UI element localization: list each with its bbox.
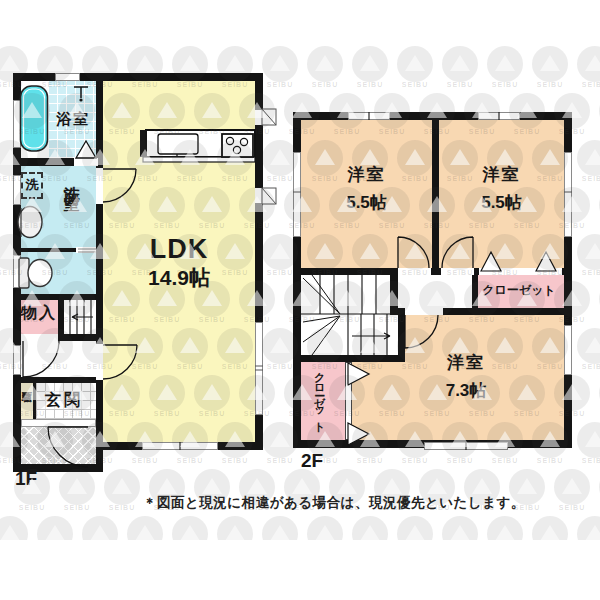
watermark-text: SEIBU bbox=[168, 457, 212, 464]
window bbox=[255, 322, 263, 415]
watermark-logo-icon bbox=[352, 516, 388, 540]
window bbox=[478, 112, 520, 120]
door-opening bbox=[96, 168, 103, 204]
watermark-logo-icon bbox=[532, 46, 568, 82]
wall bbox=[58, 300, 64, 334]
castle-icon bbox=[540, 525, 560, 540]
door-opening bbox=[96, 344, 103, 380]
watermark-text: SEIBU bbox=[573, 175, 600, 182]
entrance-porch bbox=[21, 427, 96, 464]
window bbox=[564, 325, 572, 375]
wall bbox=[293, 112, 572, 120]
wall bbox=[96, 81, 103, 472]
watermark-logo-icon bbox=[442, 46, 478, 82]
castle-icon bbox=[270, 55, 290, 71]
window bbox=[55, 73, 80, 81]
castle-icon bbox=[270, 149, 290, 165]
door-opening bbox=[76, 247, 96, 253]
window bbox=[13, 175, 21, 205]
watermark-text: SEIBU bbox=[258, 457, 302, 464]
storage-label: 物入 bbox=[21, 304, 57, 322]
watermark-badge: SEIBU bbox=[528, 516, 572, 540]
watermark-text: SEIBU bbox=[10, 504, 54, 511]
watermark-text: SEIBU bbox=[393, 81, 437, 88]
watermark-text: SEIBU bbox=[303, 81, 347, 88]
watermark-text: SEIBU bbox=[55, 504, 99, 511]
watermark-logo-icon bbox=[577, 46, 600, 82]
watermark-text: SEIBU bbox=[483, 457, 527, 464]
watermark-badge: SEIBU bbox=[213, 516, 257, 540]
castle-icon bbox=[585, 431, 600, 447]
watermark-badge: SEIBU bbox=[78, 516, 122, 540]
watermark-text: SEIBU bbox=[393, 457, 437, 464]
watermark-text: SEIBU bbox=[348, 81, 392, 88]
stairs-1f bbox=[64, 300, 96, 334]
castle-icon bbox=[315, 55, 335, 71]
castle-icon bbox=[585, 55, 600, 71]
watermark-logo-icon bbox=[577, 140, 600, 176]
castle-icon bbox=[450, 55, 470, 71]
watermark-badge: SEIBU bbox=[483, 46, 527, 88]
casement-window bbox=[262, 109, 276, 125]
watermark-text: SEIBU bbox=[438, 81, 482, 88]
watermark-logo-icon bbox=[352, 46, 388, 82]
watermark-badge: SEIBU bbox=[100, 469, 144, 511]
watermark-badge: SEIBU bbox=[168, 516, 212, 540]
wall bbox=[33, 383, 36, 419]
window bbox=[255, 110, 263, 125]
watermark-logo-icon bbox=[37, 516, 73, 540]
floor-plan: 洗 bbox=[0, 0, 600, 600]
shoe-cabinet bbox=[21, 383, 33, 419]
floor2-label: 2F bbox=[301, 450, 323, 472]
door-opening bbox=[405, 308, 441, 315]
watermark-text: SEIBU bbox=[438, 457, 482, 464]
watermark-badge: SEIBU bbox=[528, 46, 572, 88]
door-opening bbox=[398, 268, 431, 275]
castle-icon bbox=[0, 55, 20, 71]
watermark-text: SEIBU bbox=[528, 81, 572, 88]
watermark-text: SEIBU bbox=[550, 504, 594, 511]
watermark-logo-icon bbox=[59, 469, 95, 505]
bedroom-c-size-label: 7.3帖 bbox=[386, 381, 546, 401]
castle-icon bbox=[270, 243, 290, 259]
castle-icon bbox=[585, 337, 600, 353]
bedroom-b-size-label: 5.5帖 bbox=[439, 193, 564, 213]
watermark-badge: SEIBU bbox=[595, 375, 600, 417]
watermark-text: SEIBU bbox=[573, 269, 600, 276]
window bbox=[13, 345, 21, 375]
watermark-badge: SEIBU bbox=[438, 516, 482, 540]
casement-window bbox=[262, 188, 276, 204]
wall bbox=[58, 334, 103, 341]
wall bbox=[432, 120, 439, 268]
castle-icon bbox=[337, 478, 357, 494]
watermark-text: SEIBU bbox=[595, 316, 600, 323]
watermark-badge: SEIBU bbox=[595, 93, 600, 135]
wall bbox=[443, 308, 564, 315]
washing-machine-space: 洗 bbox=[21, 172, 43, 199]
castle-icon bbox=[135, 525, 155, 540]
watermark-logo-icon bbox=[577, 516, 600, 540]
watermark-badge: SEIBU bbox=[573, 516, 600, 540]
castle-icon bbox=[450, 525, 470, 540]
castle-icon bbox=[405, 525, 425, 540]
room-bedroom-c bbox=[351, 362, 564, 440]
watermark-text: SEIBU bbox=[348, 457, 392, 464]
hall-1f bbox=[21, 341, 96, 377]
castle-icon bbox=[585, 243, 600, 259]
watermark-logo-icon bbox=[577, 422, 600, 458]
watermark-badge: SEIBU bbox=[55, 469, 99, 511]
watermark-badge: SEIBU bbox=[595, 187, 600, 229]
room-toilet bbox=[21, 248, 96, 294]
window bbox=[13, 100, 21, 148]
ldk-size-label: 14.9帖 bbox=[103, 266, 255, 290]
watermark-badge: SEIBU bbox=[595, 469, 600, 511]
watermark-text: SEIBU bbox=[483, 81, 527, 88]
watermark-logo-icon bbox=[262, 516, 298, 540]
castle-icon bbox=[180, 525, 200, 540]
watermark-text: SEIBU bbox=[573, 363, 600, 370]
castle-icon bbox=[67, 478, 87, 494]
watermark-logo-icon bbox=[397, 516, 433, 540]
watermark-logo-icon bbox=[307, 516, 343, 540]
castle-icon bbox=[495, 525, 515, 540]
watermark-badge: SEIBU bbox=[573, 234, 600, 276]
watermark-logo-icon bbox=[577, 328, 600, 364]
watermark-badge: SEIBU bbox=[573, 46, 600, 88]
window bbox=[255, 188, 263, 203]
watermark-badge: SEIBU bbox=[258, 46, 302, 88]
entrance-step bbox=[21, 419, 96, 427]
castle-icon bbox=[45, 55, 65, 71]
watermark-logo-icon bbox=[127, 516, 163, 540]
door-opening bbox=[74, 158, 98, 166]
castle-icon bbox=[382, 478, 402, 494]
castle-icon bbox=[270, 431, 290, 447]
watermark-logo-icon bbox=[554, 469, 590, 505]
bedroom-b-label: 洋室 bbox=[439, 165, 564, 185]
watermark-logo-icon bbox=[217, 516, 253, 540]
watermark-logo-icon bbox=[307, 46, 343, 82]
watermark-badge: SEIBU bbox=[573, 422, 600, 464]
castle-icon bbox=[45, 525, 65, 540]
watermark-text: SEIBU bbox=[528, 457, 572, 464]
castle-icon bbox=[180, 55, 200, 71]
castle-icon bbox=[202, 478, 222, 494]
washroom-label: 洗面室 bbox=[62, 173, 80, 185]
watermark-text: SEIBU bbox=[123, 457, 167, 464]
watermark-logo-icon bbox=[172, 516, 208, 540]
watermark-text: SEIBU bbox=[258, 81, 302, 88]
watermark-text: SEIBU bbox=[595, 128, 600, 135]
watermark-badge: SEIBU bbox=[258, 516, 302, 540]
castle-icon bbox=[90, 525, 110, 540]
watermark-badge: SEIBU bbox=[573, 140, 600, 182]
castle-icon bbox=[360, 55, 380, 71]
watermark-badge: SEIBU bbox=[573, 328, 600, 370]
watermark-badge: SEIBU bbox=[483, 516, 527, 540]
watermark-logo-icon bbox=[397, 46, 433, 82]
watermark-text: SEIBU bbox=[100, 504, 144, 511]
castle-icon bbox=[585, 149, 600, 165]
castle-icon bbox=[562, 478, 582, 494]
watermark-text: SEIBU bbox=[595, 504, 600, 511]
laundry-label: 洗 bbox=[26, 178, 39, 193]
watermark-logo-icon bbox=[577, 234, 600, 270]
castle-icon bbox=[405, 55, 425, 71]
watermark-logo-icon bbox=[442, 516, 478, 540]
casement-window-flap bbox=[262, 109, 276, 125]
castle-icon bbox=[292, 478, 312, 494]
watermark-badge: SEIBU bbox=[33, 516, 77, 540]
castle-icon bbox=[427, 478, 447, 494]
watermark-badge: SEIBU bbox=[303, 46, 347, 88]
bathroom-label: 浴室 bbox=[56, 110, 90, 127]
entrance-label: 玄関 bbox=[45, 391, 83, 409]
wall bbox=[390, 275, 398, 315]
window bbox=[13, 255, 21, 288]
castle-icon bbox=[225, 55, 245, 71]
castle-icon bbox=[270, 337, 290, 353]
bedroom-c-label: 洋室 bbox=[386, 353, 546, 373]
bedroom-a-label: 洋室 bbox=[301, 165, 432, 185]
watermark-text: SEIBU bbox=[573, 457, 600, 464]
castle-icon bbox=[157, 478, 177, 494]
watermark-badge: SEIBU bbox=[123, 516, 167, 540]
window bbox=[348, 112, 390, 120]
castle-icon bbox=[270, 525, 290, 540]
bedroom-a-size-label: 5.5帖 bbox=[301, 193, 432, 213]
watermark-badge: SEIBU bbox=[393, 46, 437, 88]
castle-icon bbox=[517, 478, 537, 494]
window bbox=[424, 442, 508, 450]
closet-b-label: クローゼット bbox=[313, 364, 326, 427]
watermark-badge: SEIBU bbox=[0, 516, 32, 540]
watermark-text: SEIBU bbox=[213, 457, 257, 464]
casement-window-flap bbox=[262, 188, 276, 204]
window bbox=[564, 152, 572, 237]
castle-icon bbox=[315, 525, 335, 540]
stairs-2f bbox=[301, 275, 390, 355]
castle-icon bbox=[225, 525, 245, 540]
castle-icon bbox=[135, 55, 155, 71]
watermark-badge: SEIBU bbox=[348, 516, 392, 540]
closet-door-track bbox=[345, 362, 352, 440]
disclaimer-text: ＊図面と現況に相違がある場合は、現況優先といたします。 bbox=[143, 494, 525, 512]
castle-icon bbox=[247, 478, 267, 494]
door-opening bbox=[479, 268, 562, 275]
watermark-badge: SEIBU bbox=[348, 46, 392, 88]
window bbox=[293, 152, 301, 237]
watermark-logo-icon bbox=[104, 469, 140, 505]
window bbox=[142, 442, 218, 450]
castle-icon bbox=[540, 55, 560, 71]
castle-icon bbox=[427, 290, 447, 306]
watermark-badge: SEIBU bbox=[393, 516, 437, 540]
watermark-logo-icon bbox=[262, 46, 298, 82]
door-opening bbox=[441, 268, 474, 275]
watermark-logo-icon bbox=[532, 516, 568, 540]
watermark-logo-icon bbox=[82, 516, 118, 540]
castle-icon bbox=[112, 478, 132, 494]
castle-icon bbox=[90, 55, 110, 71]
watermark-logo-icon bbox=[0, 516, 28, 540]
watermark-badge: SEIBU bbox=[438, 46, 482, 88]
watermark-logo-icon bbox=[487, 46, 523, 82]
watermark-badge: SEIBU bbox=[303, 516, 347, 540]
watermark-text: SEIBU bbox=[595, 222, 600, 229]
watermark-logo-icon bbox=[487, 516, 523, 540]
castle-icon bbox=[0, 525, 20, 540]
watermark-badge: SEIBU bbox=[550, 469, 594, 511]
ldk-label: LDK bbox=[103, 234, 255, 265]
castle-icon bbox=[360, 525, 380, 540]
watermark-text: SEIBU bbox=[595, 410, 600, 417]
wall bbox=[13, 73, 263, 81]
castle-icon bbox=[495, 55, 515, 71]
watermark-text: SEIBU bbox=[573, 81, 600, 88]
castle-icon bbox=[585, 525, 600, 540]
castle-icon bbox=[472, 478, 492, 494]
watermark-badge: SEIBU bbox=[595, 281, 600, 323]
floor1-label: 1F bbox=[15, 468, 37, 490]
closet-a-label: クローゼット bbox=[474, 284, 564, 298]
